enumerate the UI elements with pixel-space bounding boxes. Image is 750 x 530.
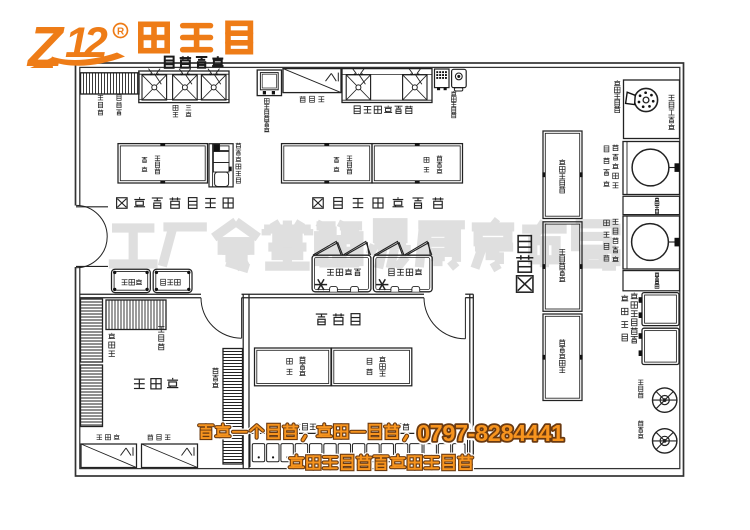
svg-text:0797-8284441: 0797-8284441 [417,420,564,446]
